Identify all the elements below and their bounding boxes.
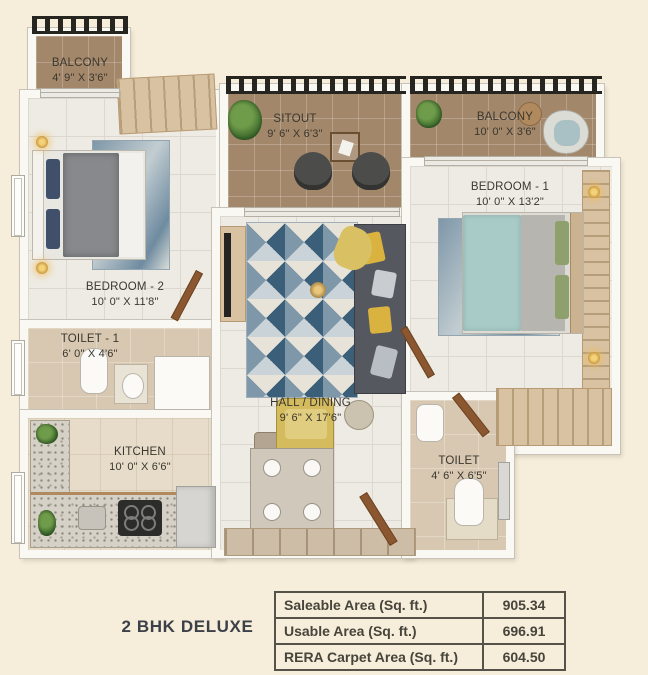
bed-blanket bbox=[63, 153, 119, 257]
bed-bedroom-2 bbox=[32, 150, 146, 260]
room-dims: 9' 6" X 6'3" bbox=[235, 127, 355, 141]
room-label-bedroom-2: BEDROOM - 2 10' 0" X 11'8" bbox=[60, 280, 190, 309]
bed-blanket bbox=[463, 215, 521, 331]
room-dims: 4' 6" X 6'5" bbox=[415, 469, 503, 483]
room-dims: 10' 0" X 11'8" bbox=[60, 295, 190, 309]
area-row-label: RERA Carpet Area (Sq. ft.) bbox=[276, 645, 484, 669]
table-row: Saleable Area (Sq. ft.) 905.34 bbox=[276, 593, 564, 617]
room-label-bedroom-1: BEDROOM - 1 10' 0" X 13'2" bbox=[440, 180, 580, 209]
wall-lamp-icon bbox=[588, 186, 600, 198]
wall-lamp-icon bbox=[36, 136, 48, 148]
room-dims: 10' 0" X 6'6" bbox=[75, 460, 205, 474]
pergola-balcony-left bbox=[32, 16, 128, 34]
room-name: BEDROOM - 1 bbox=[440, 180, 580, 195]
toilet-seat-toilet-2 bbox=[454, 478, 484, 526]
burner bbox=[141, 516, 156, 531]
magazine bbox=[338, 139, 354, 156]
sliding-door-balcony-right bbox=[424, 156, 588, 166]
kitchen-sink bbox=[78, 506, 106, 530]
bed-headboard bbox=[570, 213, 583, 333]
kitchen-plant bbox=[36, 424, 58, 444]
sliding-door-balcony-left bbox=[40, 88, 120, 98]
dinner-plate bbox=[263, 459, 281, 477]
room-dims: 10' 0" X 13'2" bbox=[440, 195, 580, 209]
bed-pillow bbox=[555, 221, 569, 265]
room-name: KITCHEN bbox=[75, 445, 205, 460]
bed-pillow bbox=[555, 275, 569, 319]
wash-basin-toilet-2 bbox=[416, 404, 444, 442]
window-toilet-1 bbox=[11, 340, 25, 396]
bed-bedroom-1 bbox=[462, 212, 584, 334]
wash-basin-counter bbox=[114, 364, 148, 404]
window-kitchen bbox=[11, 472, 25, 544]
tv bbox=[224, 233, 231, 317]
sofa-cushion bbox=[371, 269, 397, 298]
area-row-value: 604.50 bbox=[484, 645, 564, 669]
tv-unit bbox=[220, 226, 246, 322]
table-row: RERA Carpet Area (Sq. ft.) 604.50 bbox=[276, 643, 564, 669]
bed-pillow bbox=[46, 209, 60, 249]
floor-plan-canvas: BALCONY 4' 9" X 3'6" SITOUT 9' 6" X 6'3"… bbox=[0, 0, 648, 675]
room-label-toilet-1: TOILET - 1 6' 0" X 4'6" bbox=[30, 332, 150, 361]
room-name: SITOUT bbox=[235, 112, 355, 127]
bed-headboard bbox=[33, 151, 44, 259]
room-name: BALCONY bbox=[430, 110, 580, 125]
room-dims: 4' 9" X 3'6" bbox=[34, 71, 126, 85]
room-label-balcony-right: BALCONY 10' 0" X 3'6" bbox=[430, 110, 580, 139]
sofa-cushion bbox=[368, 306, 393, 334]
room-label-balcony-left: BALCONY 4' 9" X 3'6" bbox=[34, 56, 126, 85]
wall-lamp-icon bbox=[36, 262, 48, 274]
room-name: BALCONY bbox=[34, 56, 126, 71]
room-name: HALL / DINING bbox=[248, 396, 373, 411]
dinner-plate bbox=[303, 503, 321, 521]
table-row: Usable Area (Sq. ft.) 696.91 bbox=[276, 617, 564, 643]
table-clock bbox=[310, 282, 326, 298]
refrigerator bbox=[176, 486, 216, 548]
bed-pillow bbox=[46, 159, 60, 199]
pergola-sitout bbox=[226, 76, 406, 94]
dining-table bbox=[250, 448, 334, 532]
dinner-plate bbox=[263, 503, 281, 521]
area-table: Saleable Area (Sq. ft.) 905.34 Usable Ar… bbox=[274, 591, 566, 671]
sitout-chair bbox=[352, 152, 390, 190]
wardrobe-bedroom-2 bbox=[117, 73, 218, 134]
washing-machine bbox=[154, 356, 210, 410]
room-label-kitchen: KITCHEN 10' 0" X 6'6" bbox=[75, 445, 205, 474]
room-dims: 6' 0" X 4'6" bbox=[30, 347, 150, 361]
area-row-value: 696.91 bbox=[484, 619, 564, 643]
room-dims: 10' 0" X 3'6" bbox=[430, 125, 580, 139]
plan-title: 2 BHK DELUXE bbox=[95, 617, 280, 637]
bed-sheet bbox=[119, 153, 143, 257]
cooktop bbox=[118, 500, 162, 536]
pergola-balcony-right bbox=[410, 76, 602, 94]
area-row-label: Saleable Area (Sq. ft.) bbox=[276, 593, 484, 617]
area-row-value: 905.34 bbox=[484, 593, 564, 617]
window-bedroom-2 bbox=[11, 175, 25, 237]
room-name: BEDROOM - 2 bbox=[60, 280, 190, 295]
room-name: TOILET bbox=[415, 454, 503, 469]
burner bbox=[124, 516, 139, 531]
room-name: TOILET - 1 bbox=[30, 332, 150, 347]
sofa-cushion bbox=[370, 345, 399, 379]
wardrobe-bedroom-1 bbox=[496, 388, 612, 446]
room-dims: 9' 6" X 17'6" bbox=[248, 411, 373, 425]
area-row-label: Usable Area (Sq. ft.) bbox=[276, 619, 484, 643]
kitchen-plant bbox=[38, 510, 56, 536]
sitout-chair bbox=[294, 152, 332, 190]
sliding-door-sitout bbox=[244, 207, 400, 217]
room-label-sitout: SITOUT 9' 6" X 6'3" bbox=[235, 112, 355, 141]
dinner-plate bbox=[303, 459, 321, 477]
room-label-toilet-2: TOILET 4' 6" X 6'5" bbox=[415, 454, 503, 483]
room-label-hall-dining: HALL / DINING 9' 6" X 17'6" bbox=[248, 396, 373, 425]
wash-basin bbox=[122, 373, 144, 399]
wall-lamp-icon bbox=[588, 352, 600, 364]
